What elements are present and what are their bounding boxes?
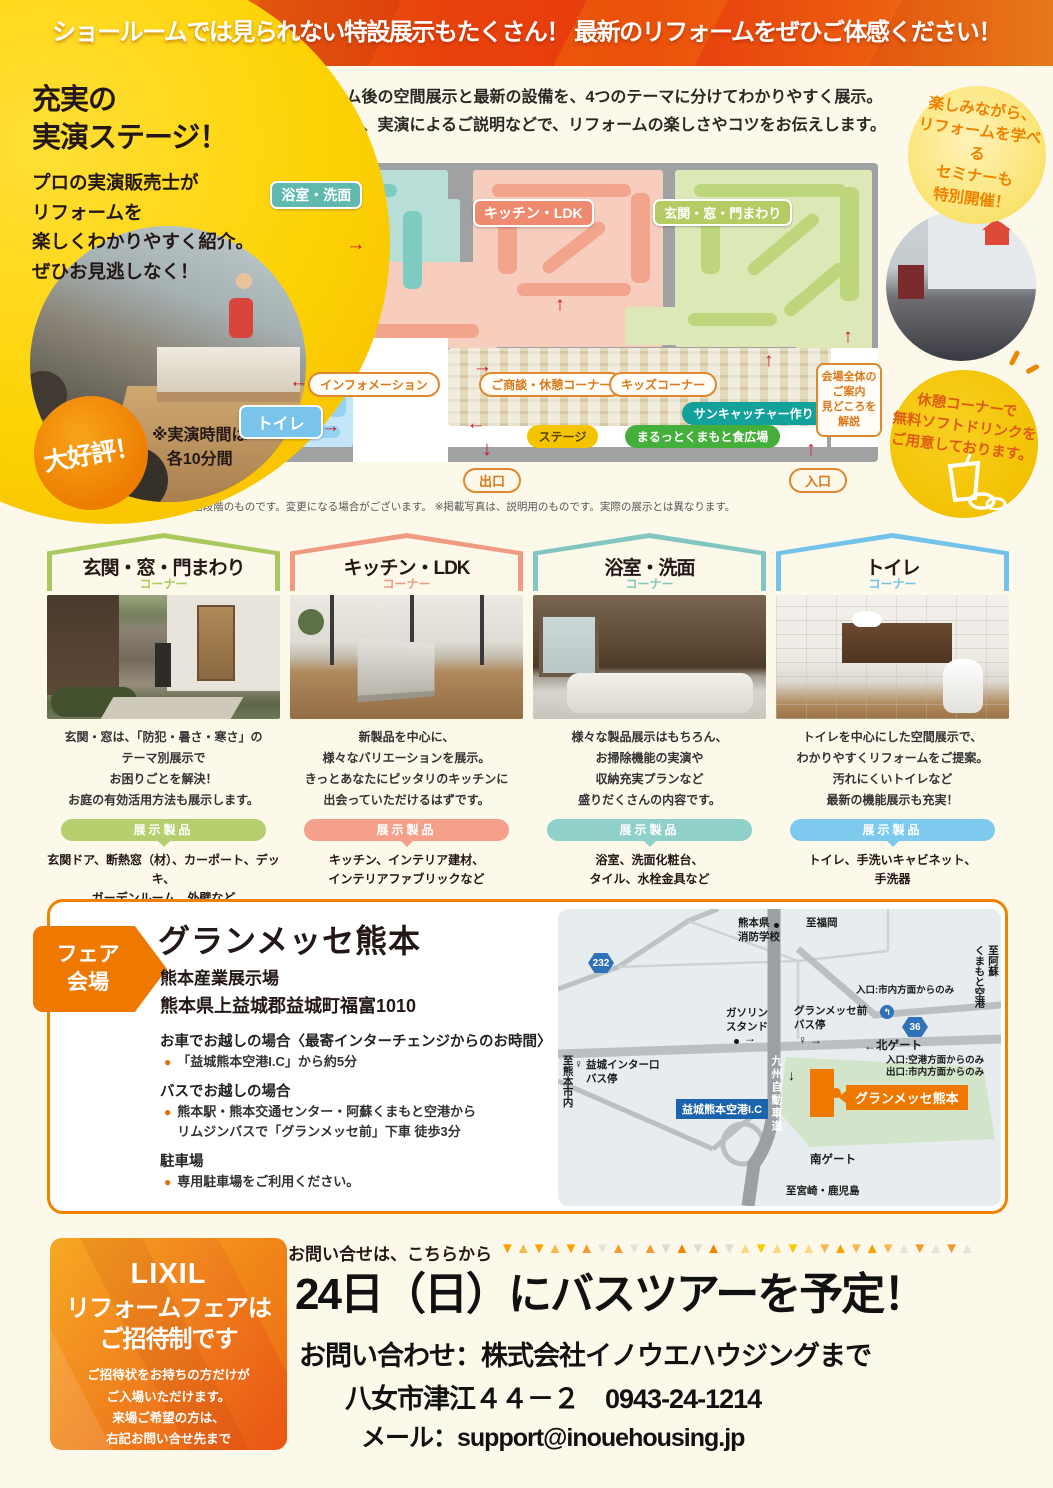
toilet-photo (776, 595, 1009, 719)
bathtub-shape (567, 673, 753, 713)
invitation-body: ご招待状をお持ちの方だけが ご入場いただけます。 来場ご希望の方は、 右記お問い… (50, 1365, 287, 1450)
triangle-icon: ▼ (849, 1241, 864, 1256)
booth-block (517, 283, 631, 296)
products-list: キッチン、インテリア建材、 インテリアファブリックなど (290, 851, 523, 889)
map-label-to-aso: 至阿蘇 くまもと空港 (972, 945, 999, 1008)
products-pill: 展示製品 (304, 819, 509, 841)
corner-subtitle: コーナー (776, 575, 1009, 592)
bullet-dot-icon: ● (164, 1052, 171, 1072)
corner-description: 玄関・窓は、「防犯・暑さ・寒さ」の テーマ別展示で お困りごとを解決！ お庭の有… (47, 727, 280, 813)
seminar-badge-text: 楽しみながら、 リフォームを学べる セミナーも 特別開催！ (902, 91, 1053, 219)
toilet-shape (943, 659, 983, 713)
corner-card-toilet: トイレ コーナー トイレを中心にした空間展示で、 わかりやすくリフォームをご提案… (776, 533, 1009, 889)
corner-description: 新製品を中心に、 様々なバリエーションを展示。 きっとあなたにピッタリのキッチン… (290, 727, 523, 813)
arrow-east-icon: → (744, 1031, 756, 1045)
booth-block (492, 184, 631, 197)
zone-entrance-area (625, 307, 688, 346)
pill-notch (401, 841, 413, 847)
intro-paragraph: リフォーム後の空間展示と最新の設備を、4つのテーマに分けてわかりやすく展示。 体… (282, 84, 890, 140)
access-parking-heading: 駐車場 (160, 1150, 204, 1171)
granmesse-label: グランメッセ熊本 (846, 1085, 968, 1110)
activity-suncatcher: サンキャッチャー作り (682, 402, 826, 425)
flyer-page: ショールームでは見られない特設展示もたくさん！ 最新のリフォームをぜひご体感くだ… (0, 0, 1053, 1488)
flow-arrow-icon: → (473, 357, 492, 376)
pill-notch (887, 841, 899, 847)
pill-notch (158, 841, 170, 847)
cabinet-shape (842, 623, 952, 663)
house-icon (985, 229, 1009, 245)
triangle-icon: ▲ (928, 1241, 943, 1256)
bathroom-photo (533, 595, 766, 719)
flow-arrow-icon: ↑ (764, 351, 774, 370)
triangle-icon: ▼ (500, 1241, 515, 1256)
brand-logo: LIXIL (50, 1258, 287, 1291)
access-car-heading: お車でお越しの場合〈最寄インターチェンジからのお時間〉 (160, 1030, 552, 1051)
access-parking-item-text: 専用駐車場をご利用ください。 (177, 1172, 359, 1192)
triangle-strip: ▼▲▼▲▼▲▼▲▼▲▼▲▼▲▼▲▼▲▼▲▼▲▼▲▼▲▼▲▼▲ (500, 1238, 1012, 1258)
contact-address-phone: 八女市津江４４－２ 0943-24-1214 (345, 1377, 761, 1416)
triangle-icon: ▼ (690, 1241, 705, 1256)
zone-label-entrance: 玄関・窓・門まわり (653, 199, 792, 226)
map-label-north-gate: 北ゲート (876, 1039, 922, 1054)
stage-counter-shape (157, 347, 301, 401)
triangle-icon: ▼ (722, 1241, 737, 1256)
map-label-fire-school: 熊本県 消防学校 (738, 917, 780, 944)
triangle-icon: ▼ (881, 1241, 896, 1256)
products-pill: 展示製品 (61, 819, 266, 841)
access-bus-heading: バスでお越しの場合 (160, 1080, 291, 1101)
access-map: 熊本県 消防学校 至福岡 232 ガソリン スタンド → グランメッセ前 バス停… (558, 909, 1001, 1206)
window-frame-shape (480, 595, 484, 665)
triangle-icon: ▼ (912, 1241, 927, 1256)
stage-promo-title: 充実の 実演ステージ！ (32, 82, 227, 157)
triangle-icon: ▼ (532, 1241, 547, 1256)
map-label-entry-city: 入口:市内方面からのみ (856, 985, 954, 997)
triangle-icon: ▼ (754, 1241, 769, 1256)
triangle-icon: ▲ (801, 1241, 816, 1256)
sparkle-icon (1009, 350, 1021, 366)
corner-description: トイレを中心にした空間展示で、 わかりやすくリフォームをご提案。 汚れにくいトイ… (776, 727, 1009, 813)
triangle-icon: ▲ (960, 1241, 975, 1256)
banner-text: ショールームでは見られない特設展示もたくさん！ 最新のリフォームをぜひご体感くだ… (0, 0, 1053, 66)
facility-kids: キッズコーナー (609, 372, 717, 397)
corner-subtitle: コーナー (47, 575, 280, 592)
flow-arrow-icon: ← (289, 372, 308, 391)
triangle-icon: ▲ (896, 1241, 911, 1256)
turn-sign-icon: ↰ (880, 1005, 894, 1019)
bullet-dot-icon: ● (164, 1172, 171, 1192)
seminar-badge: 楽しみながら、 リフォームを学べる セミナーも 特別開催！ (908, 86, 1046, 224)
house-outline: キッチン・LDK コーナー (290, 533, 523, 591)
triangle-icon: ▲ (865, 1241, 880, 1256)
corner-card-bath: 浴室・洗面 コーナー 様々な製品展示はもちろん、 お掃除機能の実演や 収納充実プ… (533, 533, 766, 889)
invitation-box: LIXIL リフォームフェアは ご招待制です ご招待状をお持ちの方だけが ご入場… (50, 1238, 287, 1450)
drink-cup-icon (934, 454, 1008, 510)
venue-box: フェア 会場 グランメッセ熊本 熊本産業展示場 熊本県上益城郡益城町福富1010… (47, 899, 1008, 1214)
invitation-title: リフォームフェアは ご招待制です (50, 1293, 287, 1355)
products-pill: 展示製品 (547, 819, 752, 841)
products-pill: 展示製品 (790, 819, 995, 841)
stage-promo-body: プロの実演販売士が リフォームを 楽しくわかりやすく紹介。 ぜひお見逃しなく！ (32, 168, 254, 286)
venue-guide-note: 会場全体の ご案内 見どころを 解説 (816, 363, 882, 436)
triangle-icon: ▼ (785, 1241, 800, 1256)
map-label-to-miyazaki: 至宮崎・鹿児島 (786, 1185, 860, 1199)
triangle-icon: ▲ (738, 1241, 753, 1256)
turn-left-glyph: ↰ (883, 1007, 891, 1018)
activity-stage: ステージ (527, 425, 599, 448)
top-banner: ショールームでは見られない特設展示もたくさん！ 最新のリフォームをぜひご体感くだ… (0, 0, 1053, 66)
flow-arrow-icon: ← (467, 414, 486, 433)
zone-label-kitchen: キッチン・LDK (473, 199, 594, 227)
mailbox-post-shape (155, 643, 171, 687)
house-outline: 玄関・窓・門まわり コーナー (47, 533, 280, 591)
location-dot-icon (774, 923, 779, 928)
venue-address: 熊本県上益城郡益城町福富1010 (160, 992, 416, 1018)
seminar-photo (886, 211, 1036, 361)
venue-name: グランメッセ熊本 (158, 916, 421, 962)
access-bus-item: ● 熊本駅・熊本交通センター・阿蘇くまもと空港から リムジンバスで「グランメッセ… (164, 1102, 476, 1142)
triangle-icon: ▲ (770, 1241, 785, 1256)
bus-stop-icon: ♀ (798, 1033, 807, 1047)
house-outline: 浴室・洗面 コーナー (533, 533, 766, 591)
wood-wall-shape (47, 595, 119, 695)
map-label-to-fukuoka: 至福岡 (806, 917, 838, 931)
map-label-granmesse-bus-stop: グランメッセ前 バス停 (794, 1005, 867, 1032)
window-shape (539, 613, 599, 677)
fair-venue-badge-text: フェア 会場 (57, 941, 144, 998)
venue-hall: 熊本産業展示場 (160, 964, 279, 989)
flow-arrow-icon: ↑ (843, 327, 853, 346)
facility-information: インフォメーション (308, 372, 439, 397)
triangle-icon: ▲ (579, 1241, 594, 1256)
exit-arrow-icon: ↓ (482, 438, 492, 461)
activity-food-plaza: まるっとくまもと食広場 (625, 425, 780, 448)
triangle-icon: ▼ (944, 1241, 959, 1256)
booth-block (840, 187, 859, 301)
plant-shape (298, 609, 324, 635)
map-label-south-gate: 南ゲート (810, 1153, 856, 1168)
free-drink-badge: 休憩コーナーで 無料ソフトドリンクを ご用意しております。 (890, 370, 1038, 518)
stage-time-note: ※実演時間は 各10分間 (152, 424, 248, 472)
triangle-icon: ▲ (833, 1241, 848, 1256)
triangle-icon: ▲ (548, 1241, 563, 1256)
demonstrator-shape (229, 298, 253, 338)
pill-notch (644, 841, 656, 847)
map-label-mashiki-bus-stop: 益城インター口 バス停 (586, 1059, 660, 1086)
contact-email: メール：support@inouehousing.jp (361, 1418, 744, 1454)
fair-venue-badge: フェア 会場 (33, 926, 167, 1012)
corner-description: 様々な製品展示はもちろん、 お掃除機能の実演や 収納充実プランなど 盛りだくさん… (533, 727, 766, 813)
house-outline: トイレ コーナー (776, 533, 1009, 591)
triangle-icon: ▼ (595, 1241, 610, 1256)
popular-badge-label: 大好評！ (41, 427, 142, 479)
corner-card-entrance: 玄関・窓・門まわり コーナー 玄関・窓は、「防犯・暑さ・寒さ」の テーマ別展示で… (47, 533, 280, 909)
door-shape (197, 605, 235, 681)
popular-badge: 大好評！ (34, 396, 148, 510)
bus-stop-icon: ♀ (574, 1057, 583, 1071)
stone-path-shape (101, 697, 244, 719)
map-label-north-gate-note: 入口:空港方面からのみ 出口:市内方面からのみ (886, 1055, 984, 1080)
access-car-item: ● 「益城熊本空港I.C」から約5分 (164, 1052, 357, 1072)
sparkle-icon (1025, 364, 1040, 375)
map-label-to-kumamoto: 至熊本市内 (560, 1055, 574, 1108)
products-list: 浴室、洗面化粧台、 タイル、水栓金具など (533, 851, 766, 889)
facility-meeting: ご商談・休憩コーナー (479, 372, 623, 397)
access-parking-item: ● 専用駐車場をご利用ください。 (164, 1172, 359, 1192)
entrance-photo (47, 595, 280, 719)
bullet-dot-icon: ● (164, 1102, 171, 1142)
flow-arrow-icon: ↑ (555, 295, 565, 314)
products-list: トイレ、手洗いキャビネット、 手洗器 (776, 851, 1009, 889)
exit-pill: 出口 (463, 468, 521, 493)
triangle-icon: ▲ (706, 1241, 721, 1256)
triangle-icon: ▲ (516, 1241, 531, 1256)
booth-block (631, 193, 650, 283)
triangle-icon: ▼ (627, 1241, 642, 1256)
arrow-west-icon: ← (864, 1039, 876, 1053)
window-frame-shape (330, 595, 334, 665)
washbasin-shape (852, 611, 882, 627)
entrance-pill: 入口 (789, 468, 847, 493)
zone-label-toilet: トイレ (239, 405, 323, 439)
zone-label-bath: 浴室・洗面 (270, 181, 362, 209)
kitchen-photo (290, 595, 523, 719)
booth-block (688, 313, 777, 326)
access-bus-item-text: 熊本駅・熊本交通センター・阿蘇くまもと空港から リムジンバスで「グランメッセ前」… (177, 1102, 476, 1142)
triangle-icon: ▼ (563, 1241, 578, 1256)
flow-arrow-icon: → (346, 235, 365, 254)
contact-company: お問い合わせ：株式会社イノウエハウジングまで (299, 1334, 871, 1373)
entrance-arrow-icon: ↑ (806, 438, 816, 461)
podium-shape (898, 265, 924, 299)
map-label-expressway: 九州自動車道 (768, 1055, 784, 1133)
bus-tour-headline: 24日（日）にバスツアーを予定！ (295, 1258, 925, 1322)
booth-block (694, 184, 846, 197)
access-car-item-text: 「益城熊本空港I.C」から約5分 (177, 1052, 357, 1072)
kitchen-island-shape (358, 638, 435, 703)
location-dot-icon (734, 1039, 739, 1044)
ic-label: 益城熊本空港I.C (676, 1099, 768, 1119)
triangle-icon: ▲ (674, 1241, 689, 1256)
arrow-east-icon: → (810, 1033, 822, 1047)
corner-subtitle: コーナー (290, 575, 523, 592)
triangle-icon: ▼ (659, 1241, 674, 1256)
corner-card-kitchen: キッチン・LDK コーナー 新製品を中心に、 様々なバリエーションを展示。 きっ… (290, 533, 523, 889)
flow-arrow-icon: → (321, 417, 340, 436)
triangle-icon: ▲ (611, 1241, 626, 1256)
triangle-icon: ▼ (817, 1241, 832, 1256)
booth-block (403, 211, 422, 289)
corner-subtitle: コーナー (533, 575, 766, 592)
arrow-south-icon: ↓ (788, 1067, 795, 1083)
triangle-icon: ▲ (643, 1241, 658, 1256)
